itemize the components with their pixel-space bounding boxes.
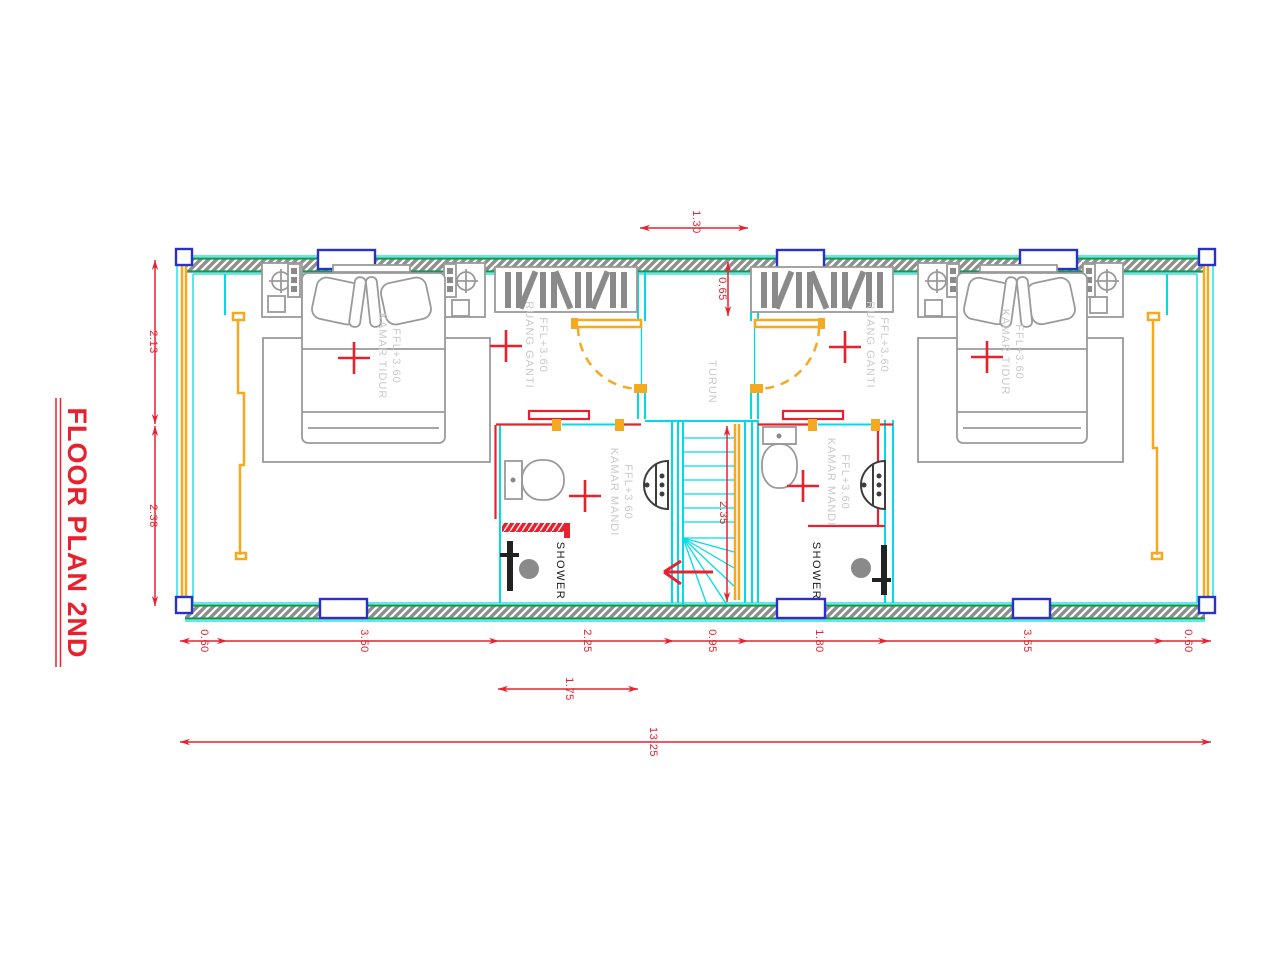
dim-bottom-3: 0.95 [704, 629, 718, 652]
dim-door-span: 1.75 [561, 677, 575, 700]
door-leaf-left [575, 320, 641, 327]
door-swing-right [757, 327, 819, 389]
stairwell-label: TURUN [704, 360, 718, 404]
headboard [333, 265, 410, 272]
shower-left-label: SHOWER [552, 542, 566, 601]
shower-screen-left [502, 523, 564, 532]
corner-post-top-left [176, 249, 192, 265]
dim-bottom-6: 0.60 [1180, 629, 1194, 652]
bath-left-door-leaf [529, 411, 589, 419]
corner-post-bottom-right [1199, 597, 1215, 613]
page-title: FLOOR PLAN 2ND [59, 407, 93, 658]
wardrobe-left [495, 267, 637, 312]
window-bottom-center [777, 599, 825, 618]
bedroom-right-level: FFL+3.60 [1011, 324, 1025, 379]
dim-stair-opening: 1.30 [688, 210, 702, 233]
bedroom-left-level: FFL+3.60 [388, 328, 402, 383]
window-bottom-right [1013, 599, 1050, 618]
bathroom-left-level: FFL+3.60 [620, 464, 634, 519]
dim-overall-width: 13.25 [645, 727, 659, 757]
door-swing-left [578, 327, 640, 389]
bedroom-right-name: KAMAR TIDUR [997, 309, 1011, 396]
sliding-panel-left [238, 320, 244, 555]
headboard [980, 265, 1057, 272]
door-leaf-right [755, 320, 821, 327]
plan-drawing [0, 0, 1280, 961]
shower-right-label: SHOWER [808, 542, 822, 601]
shower-head-left [507, 541, 513, 591]
dim-bottom-2: 2.25 [579, 629, 593, 652]
dressing-right-name: RUANG GANTI [862, 301, 876, 388]
dressing-left-level: FFL+3.60 [535, 317, 549, 372]
dressing-right-level: FFL+3.60 [876, 317, 890, 372]
dim-landing-depth: 0.65 [714, 277, 728, 300]
dim-bottom-5: 3.55 [1019, 629, 1033, 652]
dim-bottom-0: 0.60 [196, 629, 210, 652]
dim-bottom-1: 3.50 [356, 629, 370, 652]
corner-post-top-right [1199, 249, 1215, 265]
sliding-panel-right [1153, 320, 1157, 555]
bathroom-right-name: KAMAR MANDI [823, 438, 837, 527]
dim-bottom-4: 1.80 [811, 629, 825, 652]
bedroom-left-name: KAMAR TIDUR [374, 313, 388, 400]
dim-stair-run: 2.35 [715, 501, 729, 524]
pillow [1025, 276, 1077, 326]
corner-post-bottom-left [176, 597, 192, 613]
bathroom-right-level: FFL+3.60 [837, 454, 851, 509]
bath-right-door-leaf [783, 411, 843, 419]
floor-plan-canvas: FLOOR PLAN 2ND KAMAR TIDUR FFL+3.60 KAMA… [0, 0, 1280, 961]
dressing-left-name: RUANG GANTI [521, 301, 535, 388]
bathroom-left-name: KAMAR MANDI [606, 448, 620, 537]
dim-left-lower: 2.38 [145, 504, 159, 527]
window-bottom-left [320, 599, 367, 618]
shower-head-right [881, 545, 887, 595]
dim-left-upper: 2.13 [145, 330, 159, 353]
